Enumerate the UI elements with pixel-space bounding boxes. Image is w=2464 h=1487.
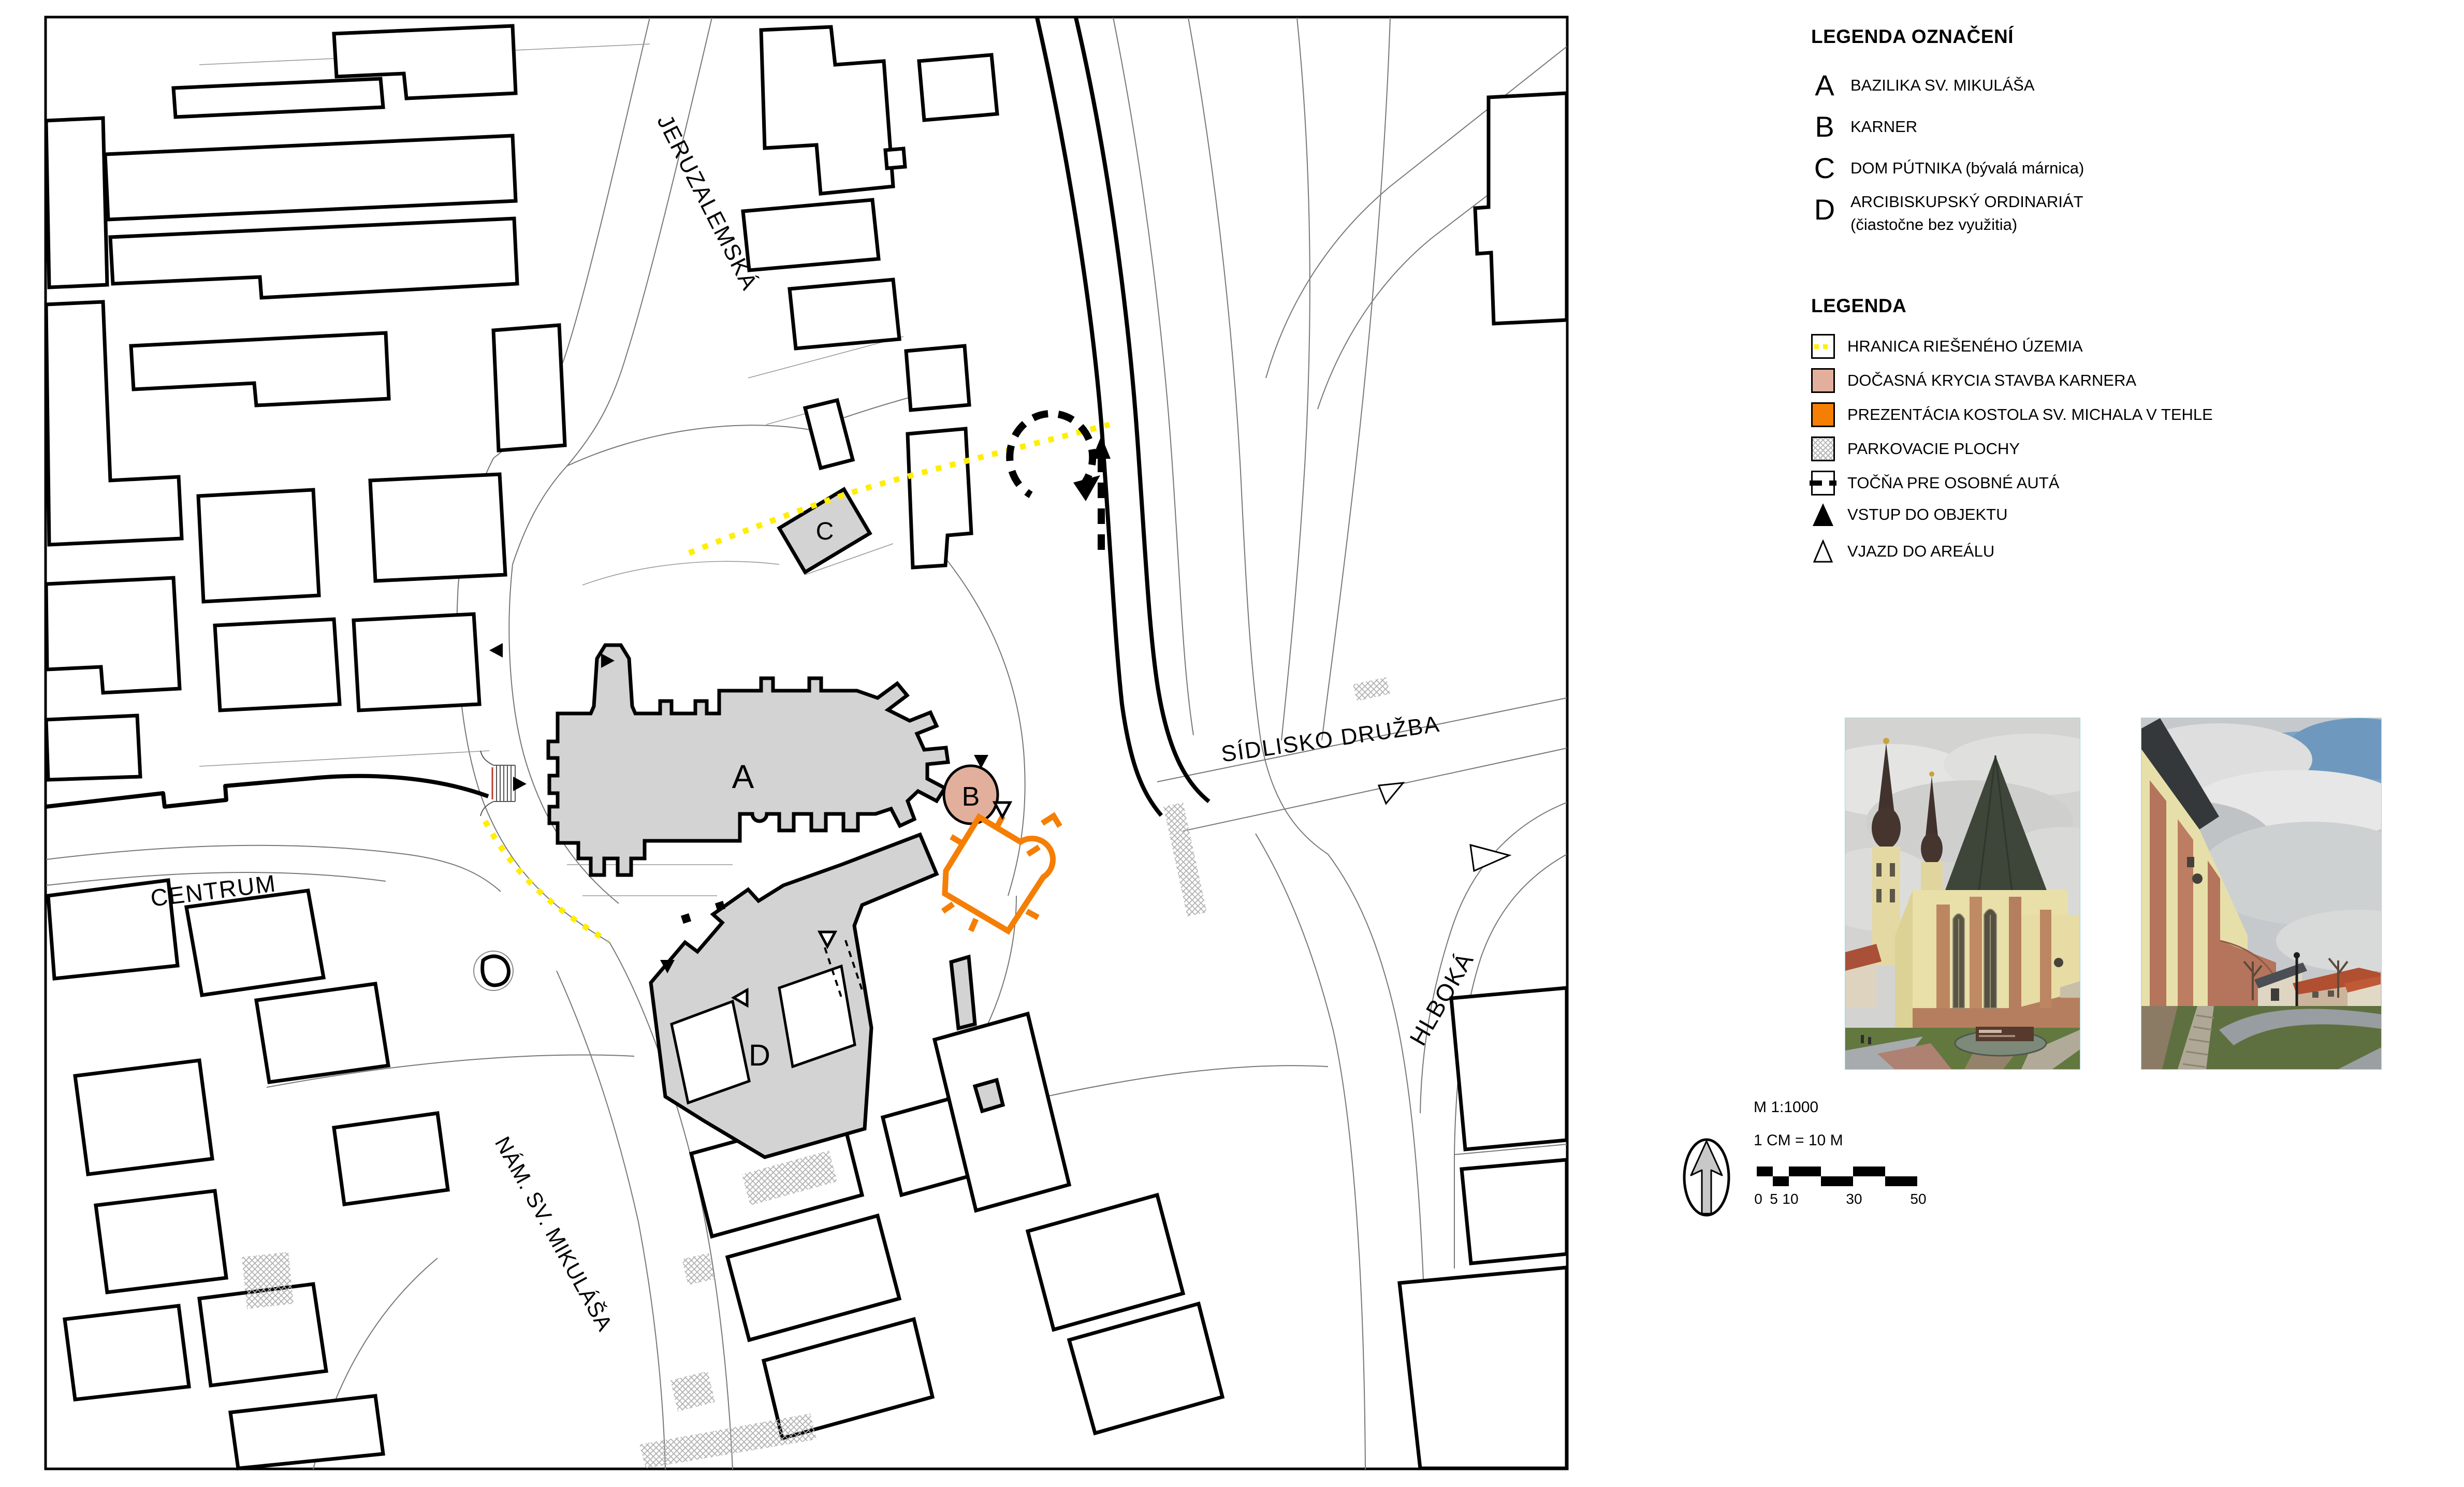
area-entry-label: VJAZD DO AREÁLU [1847, 542, 1994, 561]
photo-basilica-park [2141, 718, 2382, 1070]
entrance-triangle-icon [1813, 503, 1833, 526]
scale-tick-10: 10 [1782, 1191, 1798, 1207]
map-label-a: A [732, 758, 754, 795]
legend-key-a: A [1811, 68, 1838, 102]
legend-item-b: B KARNER [1811, 110, 1917, 143]
boundary-swatch [1811, 334, 1835, 359]
north-arrow [1682, 1137, 1731, 1220]
legend-row-boundary: HRANICA RIEŠENÉHO ÚZEMIA [1811, 334, 2083, 359]
scale-bar [1757, 1167, 1917, 1187]
scale-tick-0: 0 [1754, 1191, 1762, 1207]
parking-swatch [1811, 436, 1835, 461]
photo-basilica-apse [1845, 718, 2080, 1070]
scale-ratio: M 1:1000 [1754, 1099, 1818, 1116]
legend-key-c: C [1811, 151, 1838, 185]
map-label-c: C [816, 518, 834, 545]
map-label-b: B [962, 782, 980, 812]
legend-label-a: BAZILIKA SV. MIKULÁŠA [1850, 76, 2035, 95]
legend-label-b: KARNER [1850, 118, 1917, 136]
legend-symbols-title: LEGENDA [1811, 295, 1906, 317]
scale-tick-50: 50 [1910, 1191, 1926, 1207]
legend-label-d: ARCIBISKUPSKÝ ORDINARIÁT [1850, 193, 2083, 211]
map-label-d: D [749, 1039, 770, 1072]
karner-cover-label: DOČASNÁ KRYCIA STAVBA KARNERA [1847, 371, 2136, 390]
legend-row-area-entry: VJAZD DO AREÁLU [1811, 540, 1994, 563]
legend-key-b: B [1811, 110, 1838, 143]
scale-equivalence: 1 CM = 10 M [1754, 1132, 1843, 1149]
legend-label-c: DOM PÚTNIKA (bývalá márnica) [1850, 159, 2084, 178]
entrance-label: VSTUP DO OBJEKTU [1847, 505, 2008, 524]
karner-cover-swatch [1811, 368, 1835, 393]
legend-designations-title: LEGENDA OZNAČENÍ [1811, 26, 2014, 48]
parking-label: PARKOVACIE PLOCHY [1847, 440, 2020, 458]
legend-key-d: D [1811, 193, 1838, 226]
legend-row-brick: PREZENTÁCIA KOSTOLA SV. MICHALA V TEHLE [1811, 402, 2213, 427]
scale-tick-5: 5 [1770, 1191, 1778, 1207]
legend-row-turning: TOČŇA PRE OSOBNÉ AUTÁ [1811, 471, 2059, 495]
legend-item-c: C DOM PÚTNIKA (bývalá márnica) [1811, 151, 2084, 185]
legend-row-parking: PARKOVACIE PLOCHY [1811, 436, 2020, 461]
turning-swatch [1811, 471, 1835, 495]
legend-row-karner-cover: DOČASNÁ KRYCIA STAVBA KARNERA [1811, 368, 2136, 393]
site-plan-map: D C A B [44, 16, 1569, 1470]
legend-item-d: D ARCIBISKUPSKÝ ORDINARIÁT (čiastočne be… [1811, 193, 2083, 234]
legend-item-a: A BAZILIKA SV. MIKULÁŠA [1811, 68, 2035, 102]
legend-row-entrance: VSTUP DO OBJEKTU [1811, 503, 2008, 526]
legend-label-d2: (čiastočne bez využitia) [1850, 215, 2083, 234]
building-b-karner: B [944, 766, 998, 824]
turning-label: TOČŇA PRE OSOBNÉ AUTÁ [1847, 474, 2059, 492]
scale-tick-30: 30 [1846, 1191, 1862, 1207]
boundary-label: HRANICA RIEŠENÉHO ÚZEMIA [1847, 337, 2083, 356]
area-entry-triangle-icon [1813, 540, 1833, 563]
brick-swatch [1811, 402, 1835, 427]
brick-label: PREZENTÁCIA KOSTOLA SV. MICHALA V TEHLE [1847, 405, 2213, 424]
